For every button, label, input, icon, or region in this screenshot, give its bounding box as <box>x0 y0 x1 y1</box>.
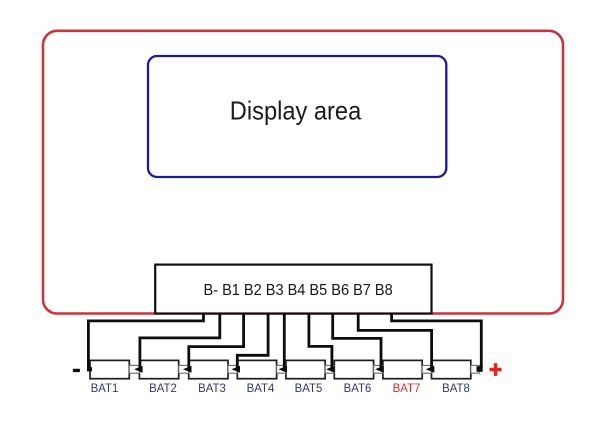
svg-text:B- B1 B2 B3 B4 B5 B6 B7 B8: B- B1 B2 B3 B4 B5 B6 B7 B8 <box>204 282 393 300</box>
svg-text:BAT2: BAT2 <box>149 382 177 395</box>
svg-text:BAT4: BAT4 <box>247 382 275 395</box>
svg-text:BAT7: BAT7 <box>393 382 421 395</box>
svg-text:BAT5: BAT5 <box>295 382 323 395</box>
svg-text:Display area: Display area <box>230 96 362 125</box>
svg-text:BAT3: BAT3 <box>198 382 226 395</box>
svg-text:BAT8: BAT8 <box>442 382 470 395</box>
svg-text:BAT1: BAT1 <box>91 382 119 395</box>
svg-text:BAT6: BAT6 <box>344 382 372 395</box>
